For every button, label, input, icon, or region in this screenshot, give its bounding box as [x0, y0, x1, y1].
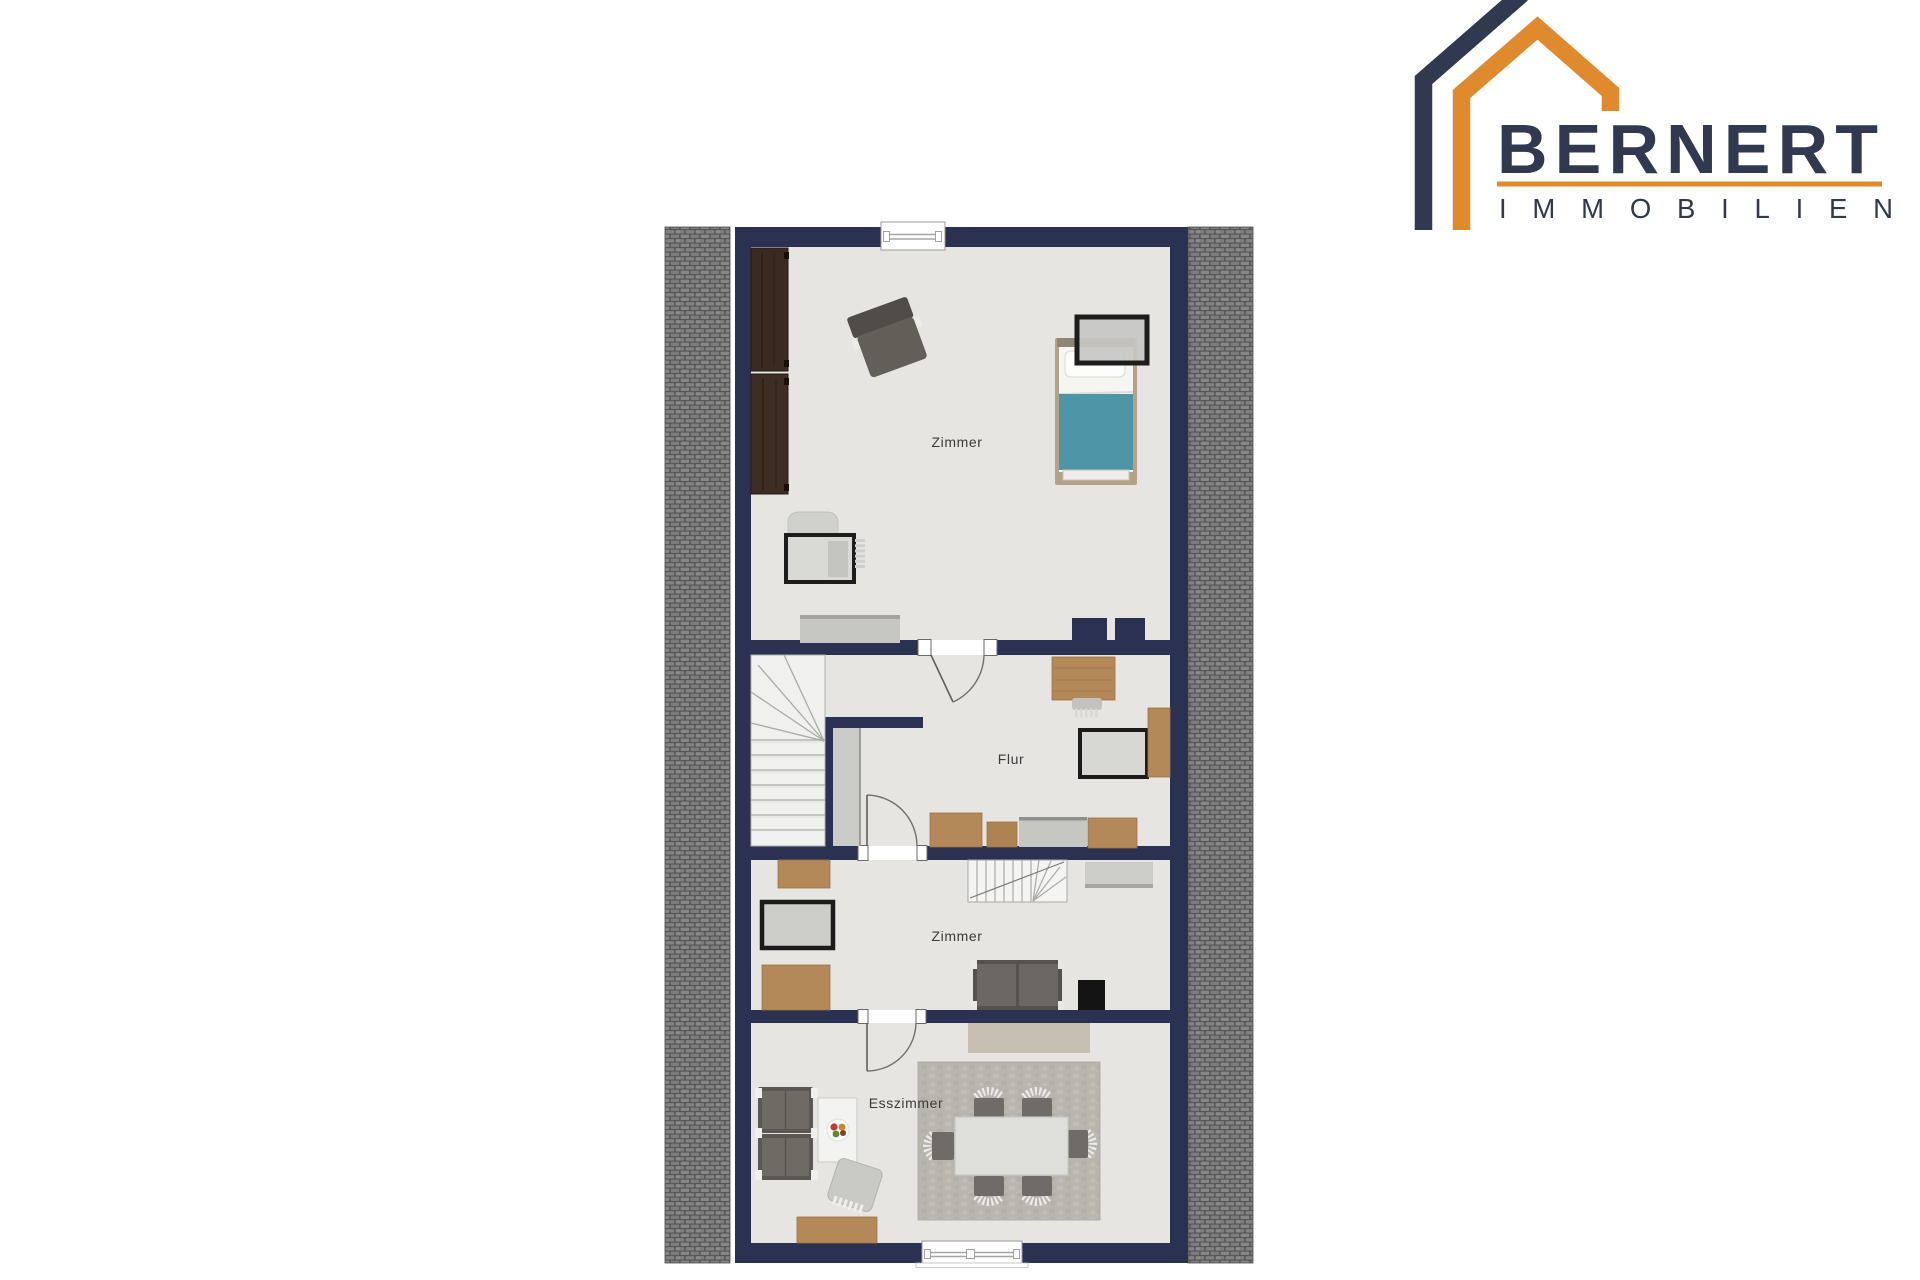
label-zimmer-top: Zimmer: [931, 434, 982, 450]
stair-side-wall: [825, 717, 833, 847]
wardrobe-dark: [751, 248, 789, 494]
sideboard-gray-zimmer2: [1085, 862, 1153, 888]
label-zimmer-middle: Zimmer: [931, 928, 982, 944]
sideboard-oak-zimmer2-bottom: [762, 965, 830, 1010]
sideboard-top-room: [800, 615, 900, 643]
rug-beige: [968, 1023, 1090, 1053]
chimney-stub-right: [1115, 618, 1145, 642]
logo-divider-line: [1497, 182, 1882, 187]
wall-picture-frame: [1077, 317, 1147, 363]
window-top: [881, 222, 945, 250]
cabinet-flur-right: [1148, 708, 1170, 777]
table-flur: [1080, 730, 1147, 777]
staircase-zimmer2: [968, 860, 1067, 902]
stair-knee-wall: [833, 728, 860, 846]
staircase-flur: [751, 655, 825, 846]
sofa-zimmer2: [971, 960, 1064, 1010]
framed-board-zimmer2: [762, 902, 833, 948]
chimney-stub-left: [1072, 618, 1107, 642]
sideboard-oak-zimmer2-top: [778, 860, 830, 888]
sideboard-oak-esszimmer: [797, 1217, 877, 1243]
logo: BERNERT IMMOBILIEN: [1424, 0, 1894, 230]
roof-strip-left: [665, 227, 730, 1263]
roof-strip-right: [1188, 227, 1253, 1263]
floorplan-image: BERNERT IMMOBILIEN: [0, 0, 1920, 1280]
logo-brand-text: BERNERT: [1497, 110, 1878, 188]
logo-subtitle-text: IMMOBILIEN: [1499, 193, 1893, 224]
stove-black-box: [1078, 980, 1105, 1010]
wall-zimmer2-esszimmer: [751, 1010, 1170, 1023]
label-flur: Flur: [998, 751, 1025, 767]
dining-table: [955, 1117, 1068, 1175]
page-canvas: BERNERT IMMOBILIEN: [0, 0, 1920, 1280]
window-bottom: [916, 1241, 1028, 1268]
coffee-table: [818, 1098, 857, 1162]
floor-plan: Zimmer Flur Zimmer Esszimmer: [665, 222, 1253, 1268]
label-esszimmer: Esszimmer: [869, 1095, 944, 1111]
landing-wall-stub: [830, 717, 923, 728]
sideboards-flur-south: [930, 813, 1137, 848]
